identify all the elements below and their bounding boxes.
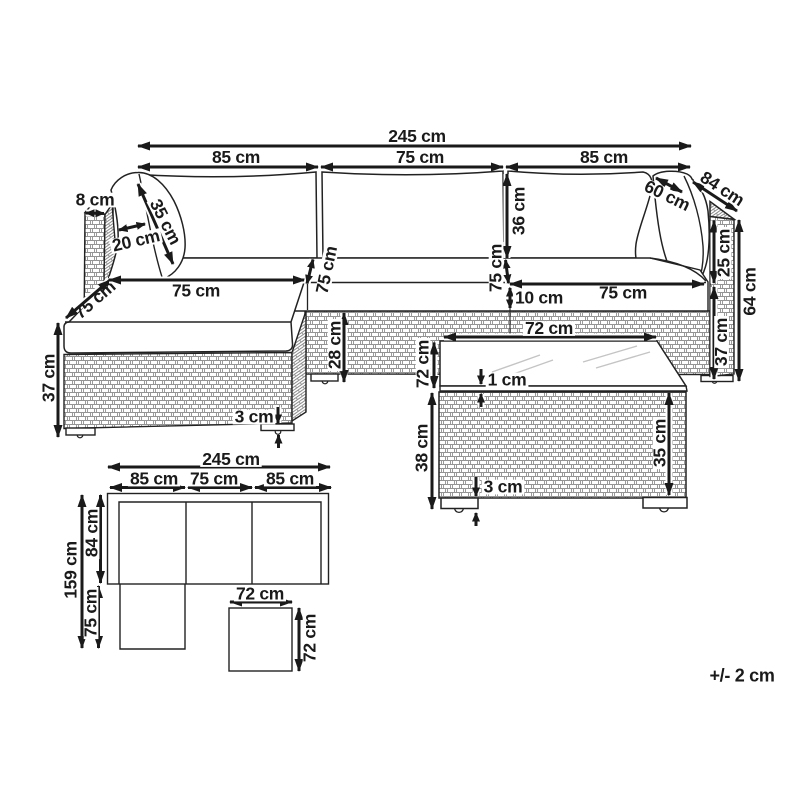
svg-text:36 cm: 36 cm	[508, 187, 528, 235]
svg-text:75 cm: 75 cm	[80, 589, 100, 637]
svg-text:35 cm: 35 cm	[649, 419, 669, 467]
svg-text:37 cm: 37 cm	[38, 354, 58, 402]
svg-text:159 cm: 159 cm	[60, 541, 80, 599]
svg-text:75 cm: 75 cm	[190, 468, 238, 488]
svg-text:25 cm: 25 cm	[713, 229, 733, 277]
svg-text:38 cm: 38 cm	[411, 424, 431, 472]
svg-text:37 cm: 37 cm	[711, 318, 731, 366]
svg-text:1 cm: 1 cm	[488, 369, 527, 389]
svg-text:10 cm: 10 cm	[515, 287, 563, 307]
svg-text:3 cm: 3 cm	[235, 406, 274, 426]
svg-text:3 cm: 3 cm	[484, 476, 523, 496]
svg-text:245 cm: 245 cm	[202, 449, 260, 469]
svg-text:84 cm: 84 cm	[81, 509, 101, 557]
svg-text:8 cm: 8 cm	[76, 189, 115, 209]
svg-text:85 cm: 85 cm	[266, 468, 314, 488]
svg-text:72 cm: 72 cm	[412, 340, 432, 388]
svg-text:72 cm: 72 cm	[525, 318, 573, 338]
svg-text:72 cm: 72 cm	[299, 614, 319, 662]
svg-text:72 cm: 72 cm	[236, 583, 284, 603]
svg-text:75 cm: 75 cm	[599, 282, 647, 302]
svg-text:28 cm: 28 cm	[324, 321, 344, 369]
svg-text:75 cm: 75 cm	[172, 280, 220, 300]
svg-text:85 cm: 85 cm	[580, 147, 628, 167]
svg-text:85 cm: 85 cm	[130, 468, 178, 488]
svg-text:+/- 2 cm: +/- 2 cm	[709, 666, 774, 686]
svg-text:75 cm: 75 cm	[396, 147, 444, 167]
svg-text:85 cm: 85 cm	[212, 147, 260, 167]
svg-text:64 cm: 64 cm	[739, 267, 759, 315]
svg-text:245 cm: 245 cm	[388, 126, 446, 146]
svg-text:75 cm: 75 cm	[485, 244, 505, 292]
